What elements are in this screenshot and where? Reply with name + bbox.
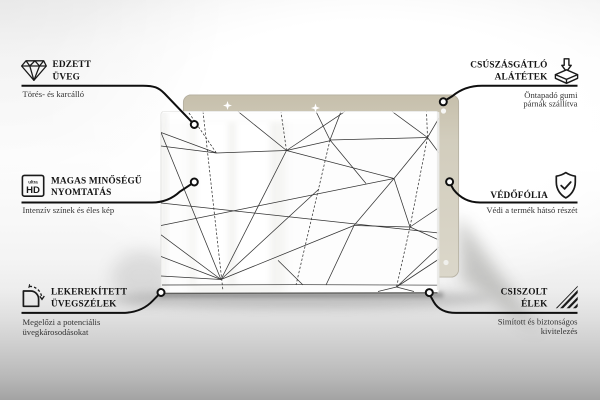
svg-text:Megelőzi a potenciális: Megelőzi a potenciális (23, 317, 101, 327)
svg-text:VÉDŐFÓLIA: VÉDŐFÓLIA (490, 189, 548, 201)
svg-text:kivitelezés: kivitelezés (541, 326, 578, 336)
svg-text:MAGAS MINŐSÉGŰ: MAGAS MINŐSÉGŰ (51, 174, 142, 186)
svg-text:Intenzív színek és éles kép: Intenzív színek és éles kép (23, 205, 115, 215)
svg-text:NYOMTATÁS: NYOMTATÁS (51, 186, 111, 198)
svg-text:ultra: ultra (28, 179, 38, 184)
svg-text:ALÁTÉTEK: ALÁTÉTEK (495, 71, 548, 83)
svg-text:LEKEREKÍTETT: LEKEREKÍTETT (51, 286, 128, 298)
svg-text:ÜVEG: ÜVEG (53, 70, 80, 83)
svg-text:CSISZOLT: CSISZOLT (501, 288, 549, 298)
svg-text:HD: HD (26, 185, 40, 196)
svg-text:Törés- és karcálló: Törés- és karcálló (23, 89, 85, 99)
svg-text:CSÚSZÁSGÁTLÓ: CSÚSZÁSGÁTLÓ (470, 58, 547, 70)
svg-text:üvegkárosodásokat: üvegkárosodásokat (23, 327, 89, 337)
svg-text:párnák szállítva: párnák szállítva (523, 99, 577, 109)
svg-text:ÉLEK: ÉLEK (521, 298, 548, 310)
svg-text:ÜVEGSZÉLEK: ÜVEGSZÉLEK (51, 297, 117, 310)
svg-text:Védi a termék hátsó részét: Védi a termék hátsó részét (486, 205, 578, 215)
svg-text:EDZETT: EDZETT (53, 60, 92, 70)
